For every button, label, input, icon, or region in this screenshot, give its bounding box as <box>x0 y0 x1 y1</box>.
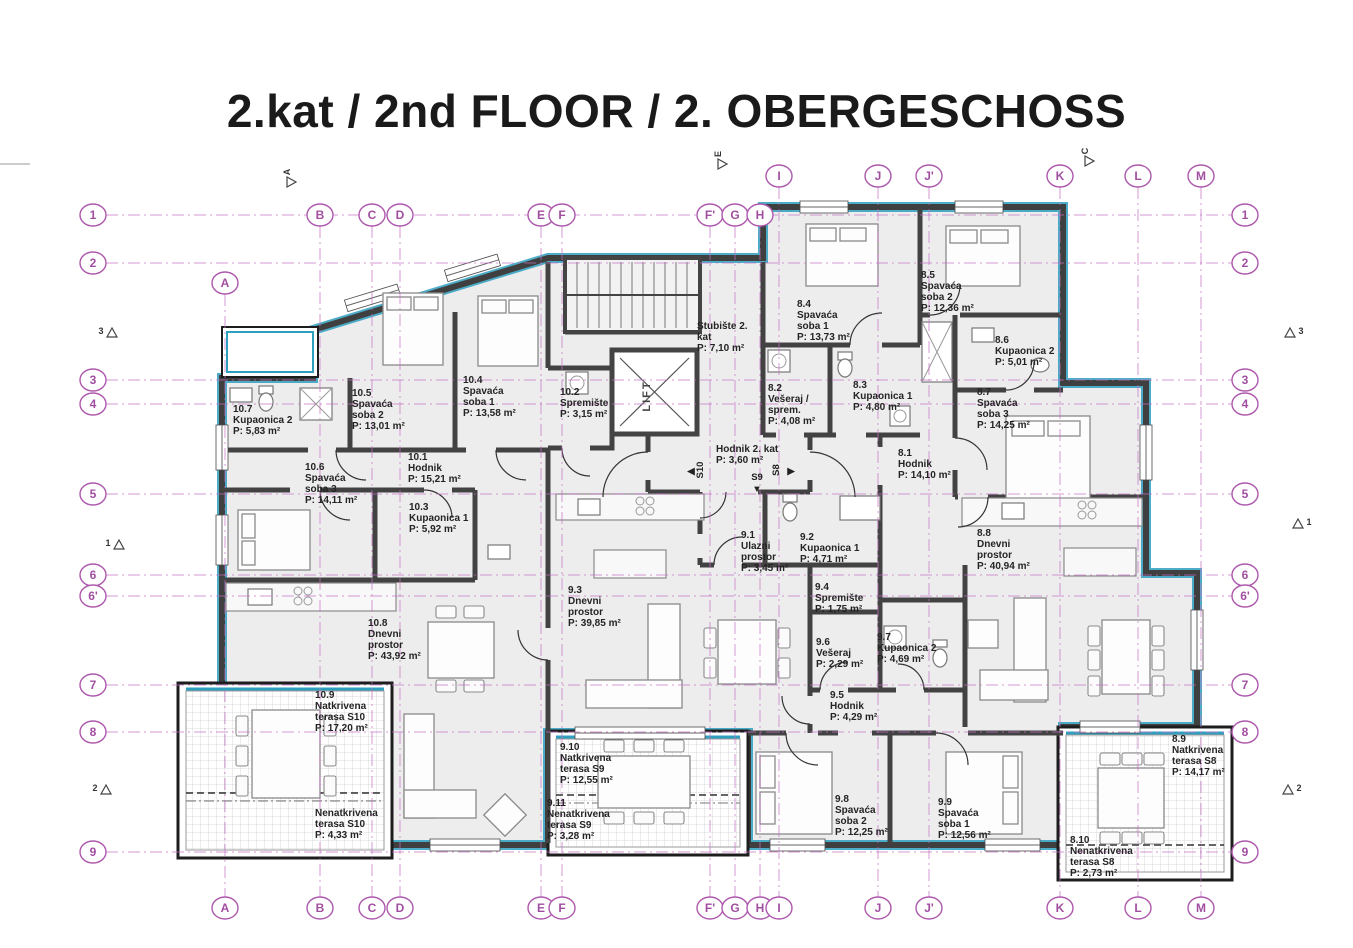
grid-bubble-label-A: A <box>221 901 230 915</box>
svg-text:3: 3 <box>98 326 103 336</box>
grid-bubble-label-A: A <box>221 276 230 290</box>
bed <box>946 226 1020 286</box>
stairwell <box>565 258 700 332</box>
svg-text:3: 3 <box>1298 326 1303 336</box>
grid-bubble-label-H: H <box>756 208 765 222</box>
grid-bubble-label-L: L <box>1134 901 1141 915</box>
floor-plan-drawing: 10.7Kupaonica 2P: 5,83 m²10.5Spavaćasoba… <box>0 0 1353 948</box>
svg-text:2: 2 <box>1296 783 1301 793</box>
grid-bubble-label-1: 1 <box>1242 208 1249 222</box>
section-marker-A: A <box>282 168 296 187</box>
section-marker-E: E <box>713 151 727 169</box>
grid-bubble-label-C: C <box>368 901 377 915</box>
grid-bubble-label-9: 9 <box>1242 845 1249 859</box>
grid-bubble-label-I: I <box>777 169 780 183</box>
label-◀: ◀ <box>686 466 695 477</box>
grid-bubble-label-F: F <box>558 901 565 915</box>
grid-bubble-label-M: M <box>1196 169 1206 183</box>
section-marker-2: 2 <box>1283 783 1302 794</box>
svg-text:2: 2 <box>92 783 97 793</box>
label-▼: ▼ <box>752 484 761 495</box>
grid-bubble-label-G: G <box>730 208 739 222</box>
grid-bubble-label-8: 8 <box>90 725 97 739</box>
section-marker-3: 3 <box>1285 326 1304 337</box>
label-S9: S9 <box>751 472 763 483</box>
floor-plan-canvas: 2.kat / 2nd FLOOR / 2. OBERGESCHOSS <box>0 0 1353 948</box>
grid-bubble-label-B: B <box>316 208 325 222</box>
grid-bubble-label-9: 9 <box>90 845 97 859</box>
grid-bubble-label-3: 3 <box>90 373 97 387</box>
grid-bubble-label-F: F <box>558 208 565 222</box>
balcony-top-left <box>222 327 318 377</box>
svg-text:A: A <box>282 168 292 175</box>
grid-bubble-label-E: E <box>537 901 545 915</box>
label-LIFT: LIFT <box>641 380 653 411</box>
bed <box>478 296 538 366</box>
elevator <box>612 350 697 434</box>
grid-bubble-label-E: E <box>537 208 545 222</box>
grid-bubble-label-F': F' <box>705 208 715 222</box>
grid-bubble-label-2: 2 <box>90 256 97 270</box>
grid-bubble-label-D: D <box>396 901 405 915</box>
section-marker-1: 1 <box>1293 517 1312 528</box>
grid-bubble-label-L: L <box>1134 169 1141 183</box>
grid-bubble-label-3: 3 <box>1242 373 1249 387</box>
grid-bubble-label-1: 1 <box>90 208 97 222</box>
grid-bubble-label-7: 7 <box>1242 678 1249 692</box>
section-marker-3: 3 <box>98 326 117 337</box>
bed <box>238 510 310 570</box>
bed <box>756 752 832 834</box>
grid-bubble-label-I: I <box>777 901 780 915</box>
grid-bubble-label-C: C <box>368 208 377 222</box>
svg-text:C: C <box>1080 147 1090 154</box>
grid-bubble-label-J: J <box>875 901 882 915</box>
section-marker-2: 2 <box>92 783 111 794</box>
grid-bubble-label-5: 5 <box>1242 487 1249 501</box>
grid-bubble-label-J': J' <box>924 169 934 183</box>
grid-bubble-label-K: K <box>1056 901 1065 915</box>
svg-text:1: 1 <box>1306 517 1311 527</box>
grid-bubble-label-M: M <box>1196 901 1206 915</box>
grid-bubble-label-6: 6 <box>90 568 97 582</box>
grid-bubble-label-H: H <box>756 901 765 915</box>
grid-bubble-label-2: 2 <box>1242 256 1249 270</box>
section-marker-1: 1 <box>105 538 124 549</box>
grid-bubble-label-J: J <box>875 169 882 183</box>
grid-bubble-label-6': 6' <box>88 589 98 603</box>
grid-bubble-label-4: 4 <box>1242 397 1249 411</box>
grid-bubble-label-8: 8 <box>1242 725 1249 739</box>
grid-bubble-label-D: D <box>396 208 405 222</box>
grid-bubble-label-6': 6' <box>1240 589 1250 603</box>
grid-bubble-label-4: 4 <box>90 397 97 411</box>
grid-bubble-label-K: K <box>1056 169 1065 183</box>
grid-bubble-label-F': F' <box>705 901 715 915</box>
svg-text:E: E <box>713 151 723 157</box>
grid-bubble-label-7: 7 <box>90 678 97 692</box>
bed <box>806 224 878 286</box>
svg-text:1: 1 <box>105 538 110 548</box>
label-S10: S10 <box>695 462 706 479</box>
section-marker-C: C <box>1080 147 1094 166</box>
grid-bubble-label-5: 5 <box>90 487 97 501</box>
grid-bubble-label-B: B <box>316 901 325 915</box>
label-S8: S8 <box>771 464 782 476</box>
bed <box>383 293 443 365</box>
grid-bubble-label-J': J' <box>924 901 934 915</box>
grid-bubble-label-G: G <box>730 901 739 915</box>
grid-bubble-label-6: 6 <box>1242 568 1249 582</box>
